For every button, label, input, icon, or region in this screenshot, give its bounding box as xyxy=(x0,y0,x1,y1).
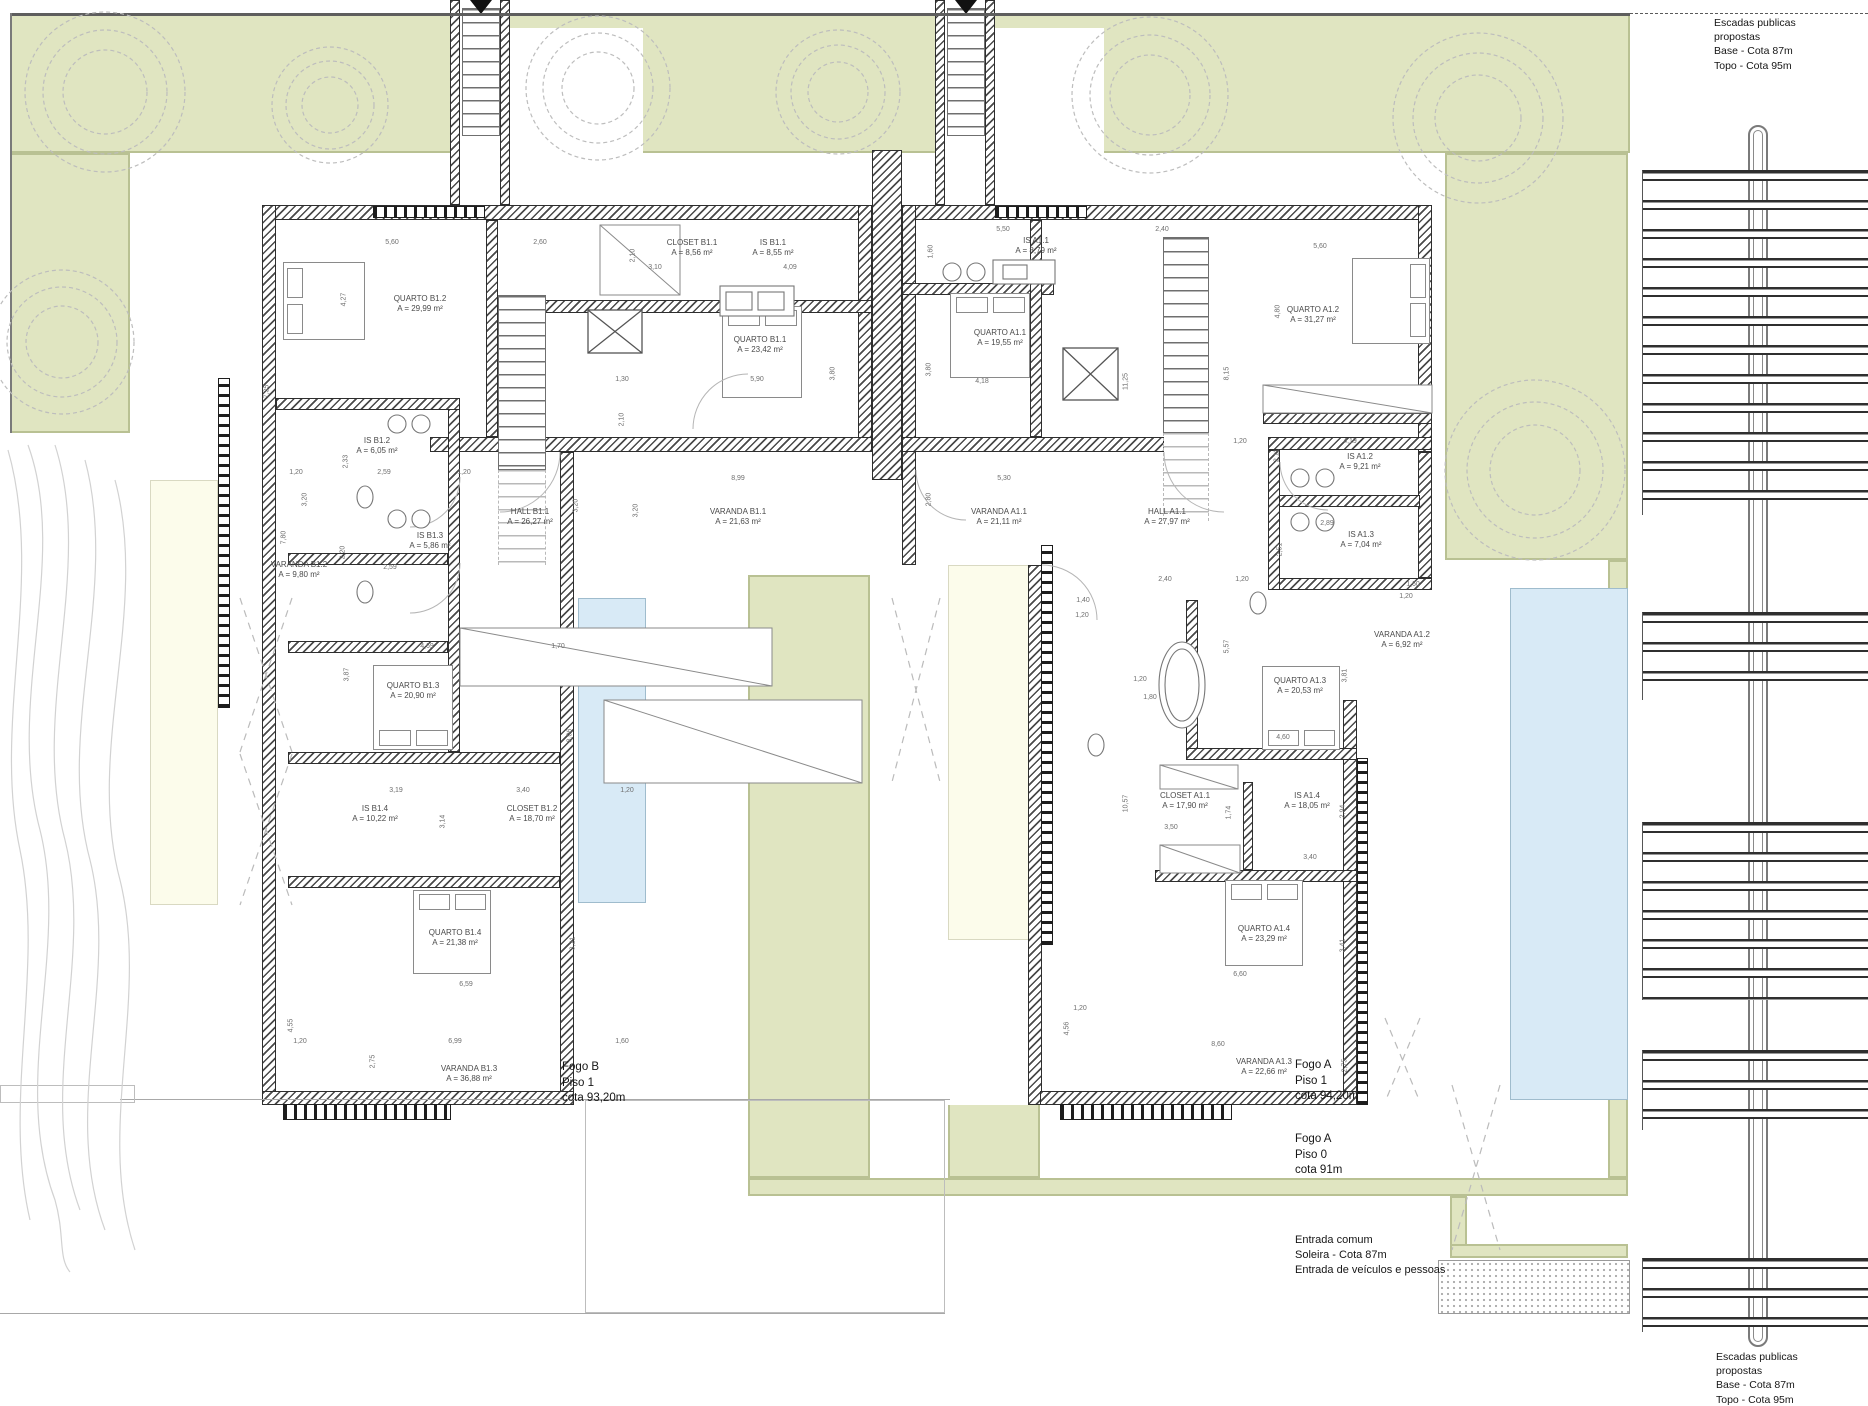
dimension-label: 1,20 xyxy=(442,469,486,476)
dimension-label: 3,80 xyxy=(830,352,837,396)
dimension-label: 1,60 xyxy=(928,230,935,274)
dimension-label: 2,89 xyxy=(1305,520,1349,527)
note-entrada-comum: Entrada comumSoleira - Cota 87mEntrada d… xyxy=(1295,1233,1445,1278)
room-label-varanda-a11: VARANDA A1.1A = 21,11 m² xyxy=(929,507,1069,527)
tree-icon xyxy=(0,12,1625,560)
note-escadas-publicas-top: Escadas publicaspropostasBase - Cota 87m… xyxy=(1714,16,1796,73)
dimension-label: 1,20 xyxy=(274,469,318,476)
room-label-quarto-a13: QUARTO A1.3A = 20,53 m² xyxy=(1230,676,1370,696)
dimension-label: 1,20 xyxy=(1060,612,1104,619)
room-label-quarto-a11: QUARTO A1.1A = 19,55 m² xyxy=(930,328,1070,348)
dimension-label: 3,80 xyxy=(926,348,933,392)
dimension-label: 7,80 xyxy=(281,516,288,560)
note-escadas-publicas-bottom: Escadas publicaspropostasBase - Cota 87m… xyxy=(1716,1350,1798,1406)
dimension-label: 8,15 xyxy=(1224,352,1231,396)
dimension-label: 11,25 xyxy=(1123,360,1130,404)
dimension-label: 2,10 xyxy=(619,398,626,442)
dimension-label: 5,90 xyxy=(735,376,779,383)
dimension-label: 2,11 xyxy=(1274,434,1281,478)
dimension-label: 5,50 xyxy=(981,226,1025,233)
dimension-label: 4,18 xyxy=(960,378,1004,385)
dimension-label: 1,20 xyxy=(605,787,649,794)
room-label-varanda-b12: VARANDA B1.2A = 9,80 m² xyxy=(229,560,369,580)
room-label-is-b14: IS B1.4A = 10,22 m² xyxy=(305,804,445,824)
dimension-label: 5,60 xyxy=(370,239,414,246)
dimension-label: 10,57 xyxy=(1123,782,1130,826)
room-label-is-b13: IS B1.3A = 5,86 m² xyxy=(360,531,500,551)
dimension-label: 8,99 xyxy=(716,475,760,482)
dimension-label: 3,14 xyxy=(440,800,447,844)
dimension-label: 6,99 xyxy=(433,1038,477,1045)
room-label-varanda-b11: VARANDA B1.1A = 21,63 m² xyxy=(668,507,808,527)
dimension-label: 1,20 xyxy=(278,1038,322,1045)
dimension-label: 2,59 xyxy=(368,564,412,571)
dimension-label: 3,40 xyxy=(1288,854,1332,861)
room-label-quarto-b11: QUARTO B1.1A = 23,42 m² xyxy=(690,335,830,355)
dimension-label: 2,51 xyxy=(1277,528,1284,572)
dimension-label: 3,19 xyxy=(374,787,418,794)
note-fogo-a-piso0: Fogo APiso 0cota 91m xyxy=(1295,1132,1342,1179)
note-fogo-a-piso1: Fogo APiso 1cota 94,20m xyxy=(1295,1058,1358,1105)
dimension-label: 3,40 xyxy=(501,787,545,794)
dimension-label: 2,59 xyxy=(362,469,406,476)
room-label-is-a14: IS A1.4A = 18,05 m² xyxy=(1237,791,1377,811)
room-label-quarto-a14: QUARTO A1.4A = 23,29 m² xyxy=(1194,924,1334,944)
dimension-label: 1,20 xyxy=(1220,576,1264,583)
dimension-label: 1,20 xyxy=(1218,438,1262,445)
dimension-label: 1,40 xyxy=(1061,597,1105,604)
room-label-quarto-b12: QUARTO B1.2A = 29,99 m² xyxy=(350,294,490,314)
dimension-label: 3,87 xyxy=(344,653,351,697)
dimension-label: 1,74 xyxy=(1226,791,1233,835)
dimension-label: 6,60 xyxy=(1218,971,1262,978)
dimension-label: 4,55 xyxy=(288,1004,295,1048)
dimension-label: 3,20 xyxy=(633,489,640,533)
linework-overlay xyxy=(0,0,1868,1406)
room-label-is-a12: IS A1.2A = 9,21 m² xyxy=(1290,452,1430,472)
dimension-label: 4,80 xyxy=(1275,290,1282,334)
room-label-closet-a11: CLOSET A1.1A = 17,90 m² xyxy=(1115,791,1255,811)
dimension-label: 1,80 xyxy=(1128,694,1172,701)
dimension-label: 8,06 xyxy=(567,714,574,758)
dimension-label: 4,56 xyxy=(1064,1007,1071,1051)
dimension-label: 3,10 xyxy=(633,264,677,271)
room-label-quarto-b13: QUARTO B1.3A = 20,90 m² xyxy=(343,681,483,701)
room-label-is-b12: IS B1.2A = 6,05 m² xyxy=(307,436,447,456)
dimension-label: 1,70 xyxy=(536,643,580,650)
structural-shaft xyxy=(588,310,1118,400)
dimension-label: 1,30 xyxy=(600,376,644,383)
room-label-is-a13: IS A1.3A = 7,04 m² xyxy=(1291,530,1431,550)
dimension-label: 4,69 xyxy=(405,643,449,650)
dimension-label: 2,40 xyxy=(1140,226,1184,233)
note-fogo-b-level: Fogo BPiso 1cota 93,20m xyxy=(562,1060,625,1107)
room-label-varanda-b13: VARANDA B1.3A = 36,88 m² xyxy=(399,1064,539,1084)
dimension-label: 5,30 xyxy=(982,475,1026,482)
room-label-quarto-a12: QUARTO A1.2A = 31,27 m² xyxy=(1243,305,1383,325)
dimension-label: 3,81 xyxy=(1342,654,1349,698)
dimension-label: 7,35 xyxy=(264,370,271,414)
floor-plan-canvas: QUARTO B1.2A = 29,99 m²CLOSET B1.1A = 8,… xyxy=(0,0,1868,1406)
dimension-label: 4,27 xyxy=(341,278,348,322)
dimension-label: 2,94 xyxy=(1340,790,1347,834)
room-label-is-a11: IS A1.1A = 8,79 m² xyxy=(966,236,1106,256)
dimension-label: 2,60 xyxy=(518,239,562,246)
room-label-closet-b12: CLOSET B1.2A = 18,70 m² xyxy=(462,804,602,824)
dimension-label: 6,59 xyxy=(444,981,488,988)
room-label-varanda-a12: VARANDA A1.2A = 6,92 m² xyxy=(1332,630,1472,650)
dimension-label: 2,75 xyxy=(370,1040,377,1084)
room-label-quarto-b14: QUARTO B1.4A = 21,38 m² xyxy=(385,928,525,948)
dimension-label: 1,60 xyxy=(600,1038,644,1045)
room-label-hall-a11: HALL A1.1A = 27,97 m² xyxy=(1097,507,1237,527)
dimension-label: 3,20 xyxy=(302,478,309,522)
dimension-label: 1,20 xyxy=(1384,593,1428,600)
dimension-label: 2,40 xyxy=(1143,576,1187,583)
dimension-label: 5,57 xyxy=(1224,625,1231,669)
dimension-label: 4,19 xyxy=(1328,438,1372,445)
dimension-label: 1,60 xyxy=(1391,581,1435,588)
dimension-label: 2,33 xyxy=(343,440,350,484)
dimension-label: 2,80 xyxy=(926,478,933,522)
door-swing xyxy=(410,374,1328,620)
dimension-label: 3,50 xyxy=(1149,824,1193,831)
room-label-is-b11: IS B1.1A = 8,55 m² xyxy=(703,238,843,258)
dimension-label: 4,60 xyxy=(1261,734,1305,741)
terrain-contours xyxy=(8,445,135,1272)
dimension-label: 3,21 xyxy=(570,922,577,966)
dimension-label: 3,20 xyxy=(573,484,580,528)
dimension-label: 5,60 xyxy=(1298,243,1342,250)
dimension-label: 1,20 xyxy=(1118,676,1162,683)
dimension-label: 2,20 xyxy=(340,531,347,575)
dimension-label: 3,41 xyxy=(1340,924,1347,968)
dimension-label: 4,09 xyxy=(768,264,812,271)
dimension-label: 8,60 xyxy=(1196,1041,1240,1048)
